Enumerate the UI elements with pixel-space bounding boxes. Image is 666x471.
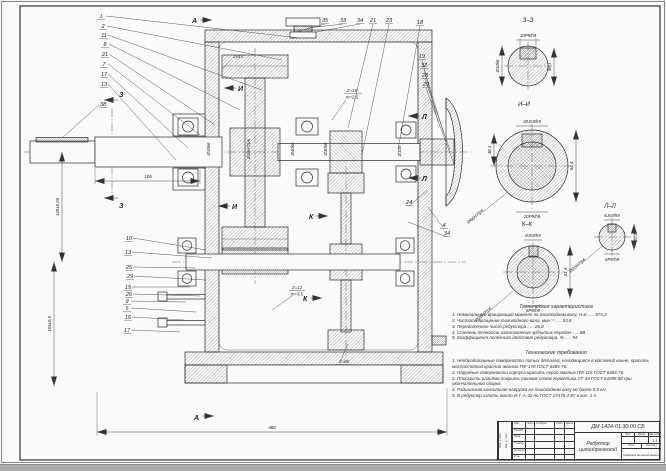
- row-tkontr: Т.контр.: [513, 442, 526, 448]
- dim-coupling: Ø100: [397, 145, 402, 157]
- callout: 29: [126, 274, 133, 280]
- gear1-z: Z=18: [346, 88, 358, 93]
- housing: [185, 30, 443, 383]
- callout: 16: [125, 315, 132, 321]
- callout: 32: [421, 63, 428, 69]
- mark-l-top: Л: [421, 114, 427, 121]
- side-stamps: Подп. и дата Инв. № подл.: [497, 421, 512, 460]
- section-ll-title: Л–Л: [603, 204, 616, 210]
- mark-z-bottom: З: [119, 203, 124, 210]
- mark-i-bottom: И: [232, 204, 238, 211]
- pinion-stage1: [330, 131, 362, 173]
- tech-req-item: 5. В редуктор залить масло И-Г-А-32 по Г…: [452, 393, 660, 399]
- callout: 5: [125, 306, 129, 312]
- dim-axis-distance-1: 140±0,05: [55, 197, 60, 216]
- mark-i-top: И: [238, 86, 244, 93]
- callout: 34: [357, 18, 363, 24]
- mark-k-bottom: К: [303, 296, 308, 303]
- col-izm: Изм.: [513, 422, 526, 428]
- callout: 19: [419, 54, 425, 60]
- callout: 21: [101, 52, 108, 58]
- callout: 35: [322, 18, 329, 24]
- callout: 1: [99, 14, 102, 20]
- callout: 28: [421, 73, 429, 79]
- technical-requirements: Технические требования 1. Необработанные…: [452, 350, 660, 399]
- callout: 24: [405, 200, 412, 206]
- mark-l-bottom: Л: [421, 176, 427, 183]
- intermediate-shaft: [186, 254, 400, 270]
- part-name-line2: цилиндрический: [579, 447, 617, 453]
- drain-plug: [432, 336, 446, 345]
- callout: 34: [444, 231, 450, 237]
- technical-characteristics: Техническая характеристика 1. Номинальны…: [452, 304, 660, 341]
- callout: 17: [101, 72, 108, 78]
- col-doc: № докум.: [535, 422, 556, 428]
- dim-shaft-length: 106: [144, 174, 152, 179]
- dim-fit-3: Ø40k6: [290, 142, 295, 156]
- section-zz: З–З 10P9/h9 Ø34k6 38,1: [495, 18, 554, 90]
- dim-ii-left: 48,1: [487, 145, 492, 154]
- mass-header: Масса: [635, 433, 648, 436]
- row-razrab: Разраб.: [513, 429, 526, 435]
- section-kk-title: К–К: [522, 222, 533, 228]
- callout: 18: [417, 20, 424, 26]
- stamp-inv-podl: Инв. № подл.: [505, 422, 511, 459]
- dim-ll-key-top: 6Js9/h9: [604, 213, 620, 218]
- callout: 33: [340, 18, 347, 24]
- row-nkontr: Н.контр.: [513, 449, 526, 455]
- col-data: Дата: [565, 422, 574, 428]
- stamp-podp-data: Подп. и дата: [498, 422, 505, 459]
- dim-ll-bore-fit: Ø20H7/p6: [567, 257, 587, 275]
- col-podp: Подп.: [555, 422, 565, 428]
- scan-edge: [0, 464, 666, 471]
- gear1-m: m=2,5: [346, 95, 359, 100]
- callout: 38: [100, 102, 107, 108]
- callout: 23: [385, 18, 393, 24]
- callout: 8: [103, 42, 107, 48]
- callout: 9: [125, 299, 128, 305]
- tech-req-item: 1. Необработанные поверхности литых дета…: [452, 358, 660, 370]
- dim-zz-diameter: Ø34k6: [495, 59, 500, 73]
- dim-zz-depth: 38,1: [547, 62, 552, 71]
- section-ii: И–И 20Js9/h9 20P9/h9 48,1 64,4 Ø60H7/p6: [465, 102, 576, 225]
- tech-char-item: 5. Коэффициент полезного действия редукт…: [452, 335, 660, 341]
- title-block-signatures: Изм. Лист № докум. Подп. Дата Разраб. Пр…: [513, 422, 575, 461]
- callout: 11: [101, 33, 107, 39]
- dim-ii-bore-fit: Ø60H7/p6: [465, 208, 485, 226]
- section-ll: Л–Л 6Js9/h9 6P9/h9 22,8 Ø20H7/p6: [567, 204, 638, 274]
- organization: Кафедра деталей машин: [622, 449, 661, 461]
- tech-req-title: Технические требования: [452, 350, 660, 356]
- callout: 2: [100, 24, 105, 30]
- document-number: ДМ 1424-01.30.00 СБ: [575, 422, 661, 433]
- col-list: Лист: [526, 422, 535, 428]
- scale-header: Масштаб: [649, 433, 661, 436]
- section-zz-title: З–З: [523, 18, 534, 24]
- main-view: А А З З И И К К Л Л 460 106: [24, 14, 472, 436]
- dim-ii-key-bottom: 20P9/h9: [523, 214, 541, 219]
- lit-header: Лит.: [622, 433, 635, 436]
- callout: 15: [125, 285, 132, 291]
- dim-kk-key-top: 8Js9/h9: [525, 233, 541, 238]
- callout: 4: [442, 223, 445, 229]
- dim-chamfer: 2×45°: [232, 54, 245, 59]
- dim-overall: 460: [268, 425, 276, 430]
- callout: 17: [124, 328, 131, 334]
- callout: 10: [126, 236, 133, 242]
- mark-z-top: З: [119, 92, 124, 99]
- callout: 25: [125, 265, 133, 271]
- dim-ii-key-top: 20Js9/h9: [522, 119, 541, 124]
- dim-axis-distance-2: 165±0,5: [47, 316, 52, 332]
- mark-a-bottom: А: [193, 415, 199, 422]
- section-ii-title: И–И: [518, 102, 531, 108]
- callout: 29: [422, 82, 429, 88]
- gear3-z: Z=80: [338, 359, 350, 364]
- drawing-canvas: А А З З И И К К Л Л 460 106: [0, 0, 666, 471]
- dim-kk-right: 31,4: [563, 267, 568, 276]
- sheet-label: Лист: [622, 444, 642, 448]
- tech-req-item: 3. Плоскость разъёма покрыть тонким слое…: [452, 376, 660, 388]
- row-utv: Утв.: [513, 455, 526, 461]
- title-block-main: ДМ 1424-01.30.00 СБ Редуктор цилиндричес…: [575, 422, 661, 461]
- mark-k-top: К: [309, 214, 314, 221]
- dim-fit-4: Ø30k6: [323, 142, 328, 156]
- row-prov: Пров.: [513, 435, 526, 441]
- callout: 21: [369, 18, 376, 24]
- dim-fit-2: Ø45H7/p6: [246, 138, 251, 160]
- part-name: Редуктор цилиндрический: [575, 433, 622, 461]
- flange-bolts: [158, 292, 205, 327]
- sheets-label: Листов 1: [642, 444, 661, 448]
- callout: 13: [101, 82, 108, 88]
- gear-wheel-stage1: [222, 55, 288, 250]
- gear2-m: m=3,5: [291, 292, 304, 297]
- gear2-z: Z=12: [291, 285, 303, 290]
- callout: 26: [125, 292, 133, 298]
- scale-value: 1:1: [649, 437, 661, 443]
- dim-ll-key-bottom: 6P9/h9: [605, 257, 619, 262]
- mark-a-top: А: [191, 18, 197, 25]
- dim-fit-1: Ø35k6: [206, 142, 211, 156]
- title-block: Изм. Лист № докум. Подп. Дата Разраб. Пр…: [512, 421, 660, 460]
- dim-zz-key: 10P9/h9: [520, 33, 537, 38]
- tech-char-title: Техническая характеристика: [452, 304, 660, 310]
- breather-plug: [286, 18, 320, 38]
- dim-ii-right: 64,4: [569, 161, 574, 170]
- dim-ll-right: 22,8: [633, 232, 638, 242]
- drawing-sheet: А А З З И И К К Л Л 460 106: [0, 0, 666, 471]
- callout: 13: [125, 250, 132, 256]
- callout: 7: [102, 62, 106, 68]
